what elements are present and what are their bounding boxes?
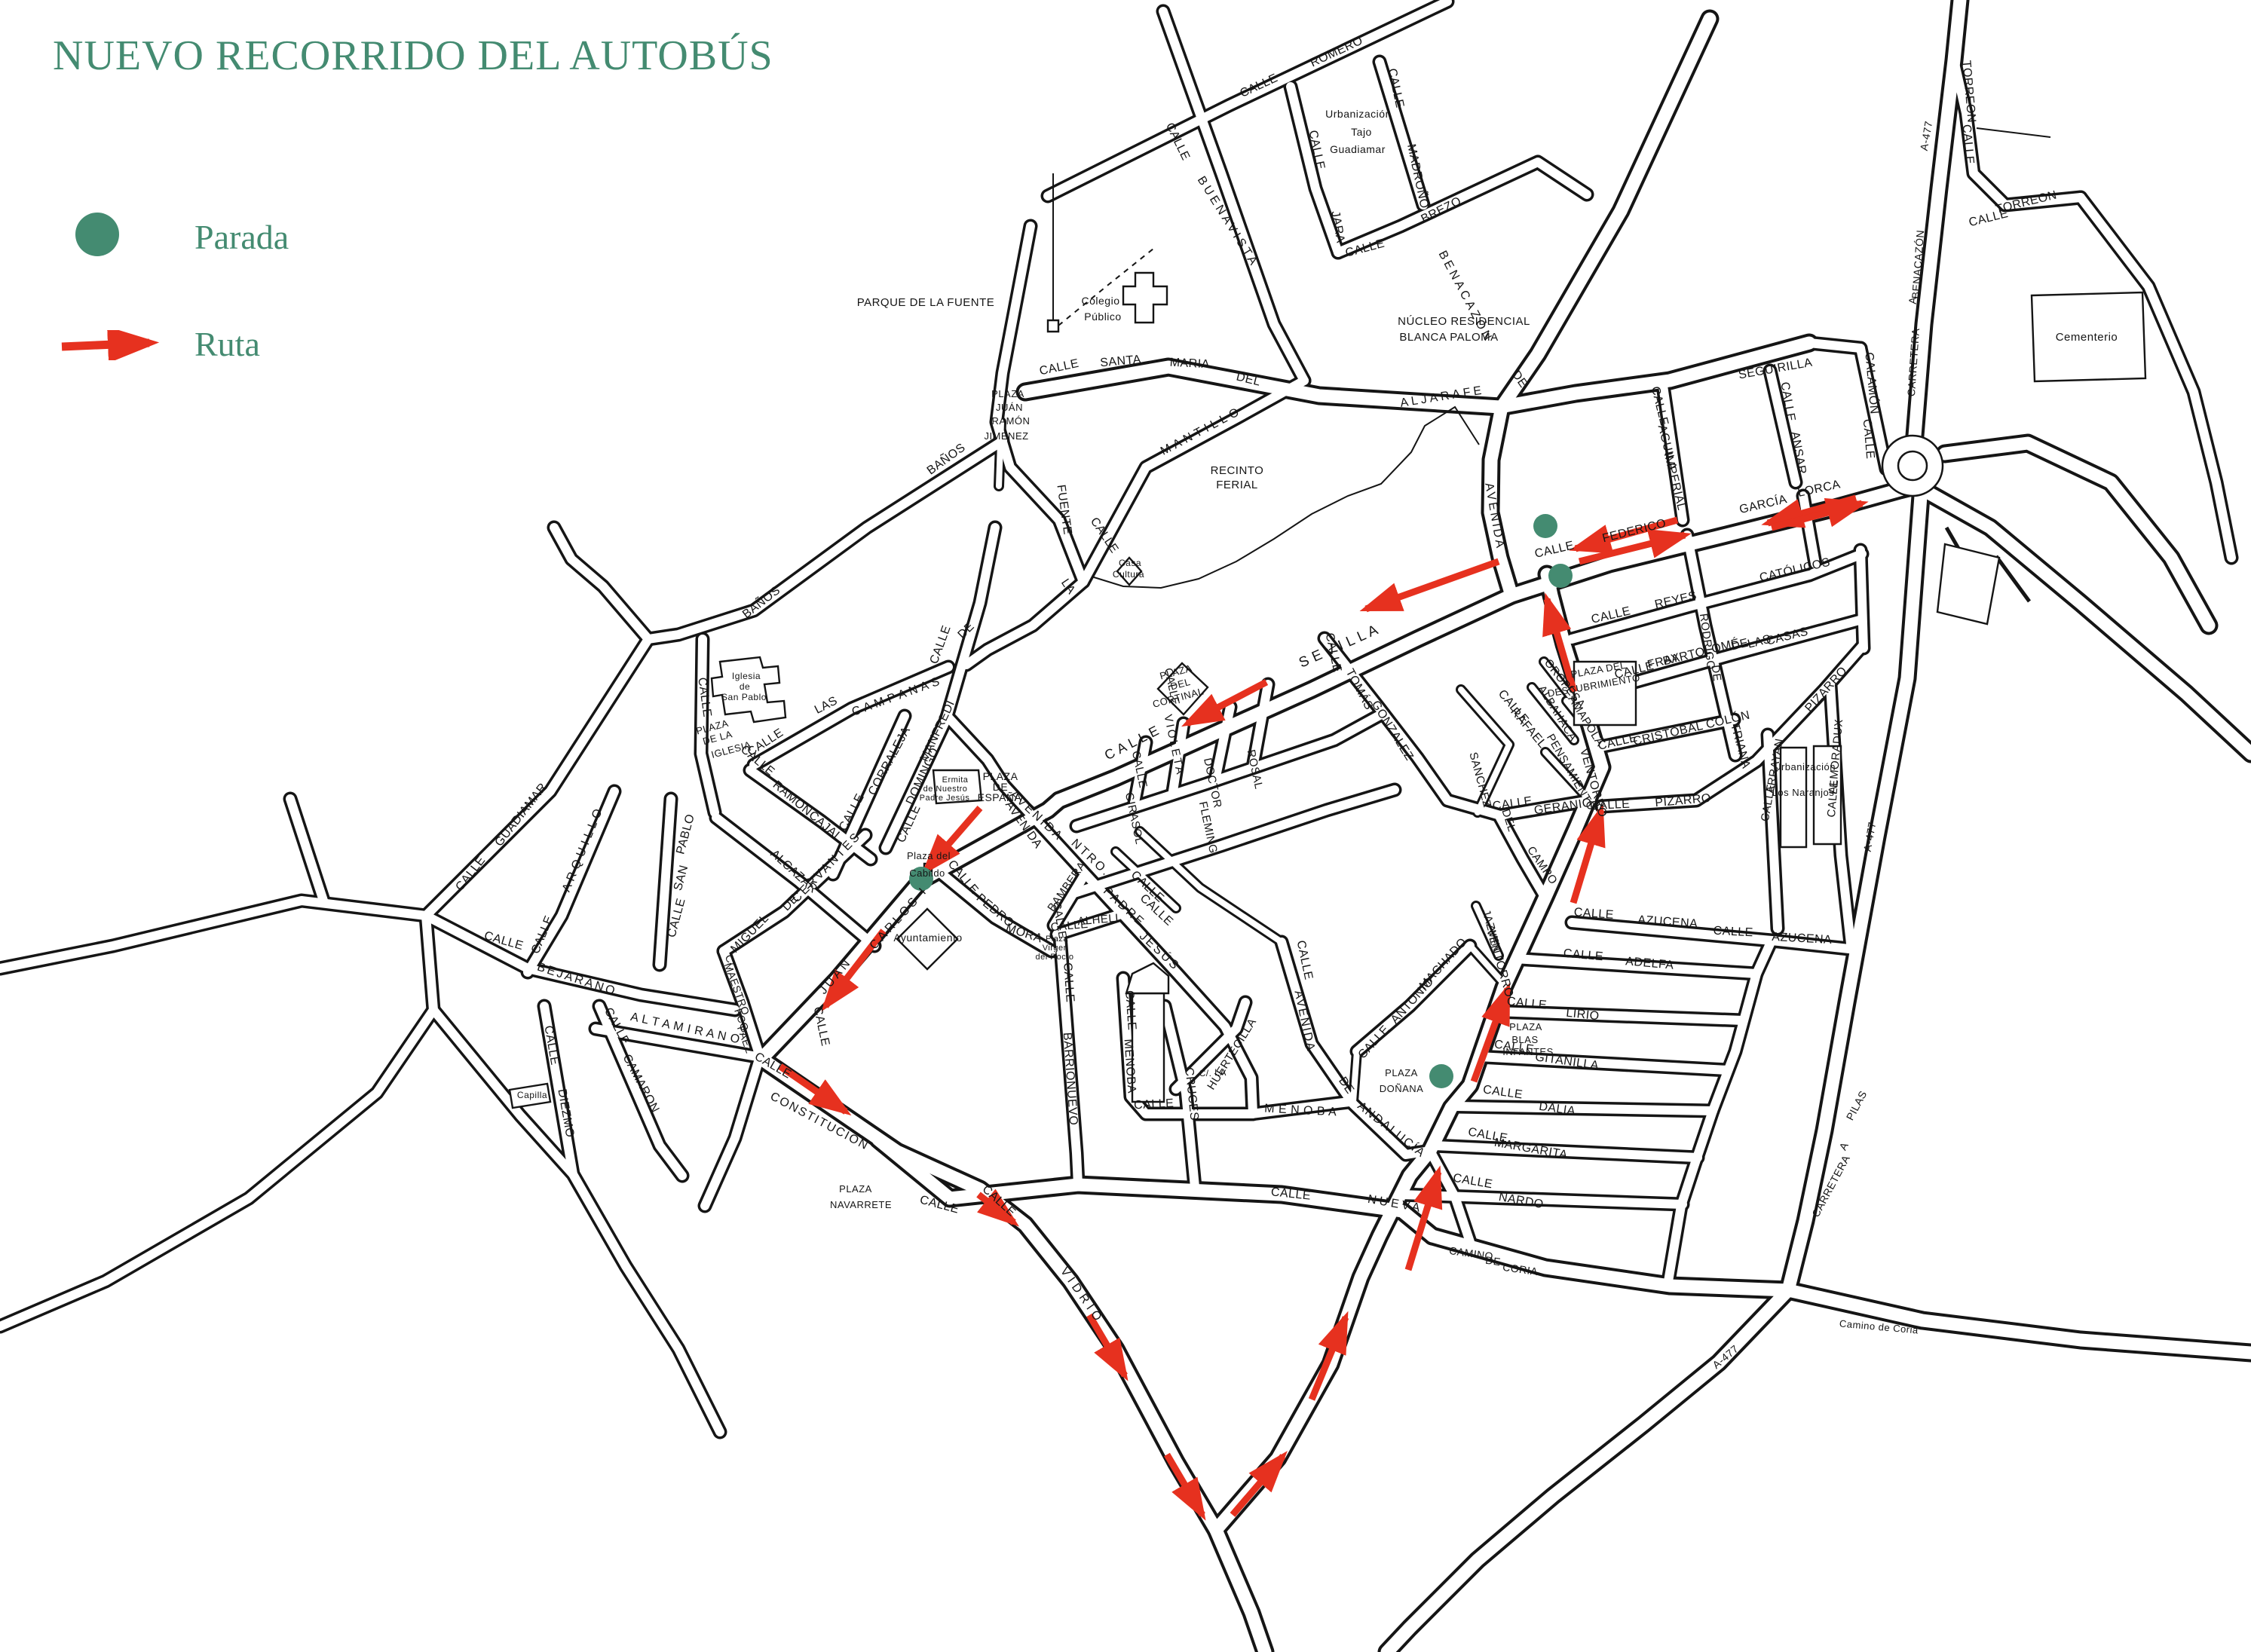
street-label: CALLE — [1713, 925, 1753, 940]
street-label: CERVANTES — [790, 830, 864, 906]
street-label: RECINTO — [1211, 464, 1264, 477]
street-label: del Rocío — [1036, 953, 1074, 962]
street-label: DOÑANA — [1380, 1083, 1424, 1094]
street-label: Urbanización — [1774, 761, 1836, 772]
street-label: TORREON — [1994, 188, 2058, 216]
street-label: SAN — [672, 864, 691, 892]
street-label: DE — [1709, 664, 1724, 682]
street-label: PIZARRO — [1655, 792, 1712, 809]
street-label: BARRIONUEVO — [1061, 1032, 1080, 1126]
street-label: Público — [1084, 311, 1121, 323]
street-label: MARGARITA — [1493, 1137, 1569, 1162]
road — [660, 799, 671, 965]
legend-ruta-label: Ruta — [194, 324, 260, 364]
street-label: INFANTES — [1502, 1046, 1554, 1057]
street-label: MARIA — [1169, 356, 1210, 372]
legend-parada-label: Parada — [194, 217, 289, 257]
street-label: CALLE — [1861, 418, 1877, 459]
street-label: RAMÓN — [992, 415, 1031, 427]
street-label: de Nuestro — [923, 785, 968, 794]
street-label: CALLE — [1482, 1083, 1524, 1101]
road — [433, 1010, 720, 1432]
road — [1809, 343, 1861, 348]
street-label: PARQUE DE LA FUENTE — [857, 296, 995, 309]
route-arrow — [1233, 1456, 1283, 1515]
bus-route-map-page: { "title": "NUEVO RECORRIDO DEL AUTOBÚS"… — [0, 0, 2251, 1652]
ruta-arrow-icon — [53, 330, 181, 360]
street-label: JESÚS — [1137, 928, 1184, 973]
street-label: MANTILLO — [1159, 404, 1245, 457]
street-label: A — [1836, 1140, 1851, 1152]
street-label: LORCA — [1796, 478, 1842, 500]
street-label: CALLE — [1960, 124, 1977, 164]
street-label: A-477 — [1918, 120, 1935, 151]
street-label: GONZALEZ — [1369, 699, 1416, 763]
road — [705, 1057, 760, 1206]
bus-stop-dot — [1548, 564, 1573, 588]
street-label: V I D R I O — [1058, 1265, 1104, 1324]
road — [0, 901, 426, 968]
street-label: ANDALUCÍA — [1355, 1098, 1429, 1160]
street-label: Cultura — [1113, 569, 1144, 580]
roundabout-island — [1898, 451, 1927, 480]
street-label: PILAS — [1844, 1088, 1870, 1122]
building-outline — [1048, 320, 1058, 332]
road — [1456, 1106, 1713, 1111]
road — [0, 916, 433, 1326]
street-label: Urbanización — [1325, 108, 1392, 120]
street-label: CALLE — [928, 624, 954, 666]
road — [1083, 381, 1304, 582]
road — [1861, 550, 1864, 648]
street-label: CALLE — [811, 1005, 832, 1048]
bus-stop-dot — [1429, 1064, 1453, 1088]
street-label: GUADIAMAR — [493, 781, 550, 849]
street-label: PLAZA — [991, 388, 1024, 399]
road — [554, 528, 648, 639]
building-outline — [1123, 273, 1167, 323]
street-label: DE — [1484, 1254, 1501, 1268]
street-label: Padre Jesús — [920, 794, 970, 803]
street-label: JUÁN — [996, 402, 1023, 413]
street-label: RAMON — [770, 779, 814, 818]
road — [648, 441, 1003, 639]
street-label: Guadiamar — [1330, 143, 1386, 155]
street-label: NÚCLEO RESIDENCIAL — [1398, 315, 1530, 328]
road — [1432, 1236, 2251, 1353]
street-label: Los Naranjos — [1772, 787, 1835, 798]
street-label: CALAMÓN — [1862, 352, 1882, 415]
road — [426, 916, 735, 1010]
road — [1083, 381, 1304, 582]
street-label: Capilla — [517, 1090, 547, 1100]
street-label: ALHELI — [1077, 912, 1119, 928]
street-label: PLAZA — [1509, 1021, 1542, 1032]
road — [426, 639, 648, 916]
street-label: PLAZA — [839, 1183, 872, 1195]
parada-stop-icon — [75, 213, 119, 256]
street-label: Ayuntamiento — [893, 932, 962, 944]
boundary-line — [1092, 407, 1479, 588]
street-label: Ermita — [942, 776, 969, 785]
street-label: AVENIDA — [1291, 990, 1317, 1054]
road — [290, 799, 324, 903]
town-map: CALLEROMEROCALLEJARACALLEMADROÑOBREZOCAL… — [0, 0, 2251, 1652]
boundary-line — [1977, 128, 2050, 137]
street-label: BLAS — [1511, 1034, 1538, 1045]
street-label: Plaza del — [907, 850, 951, 861]
street-label: Plaza — [1046, 935, 1068, 944]
street-label: FERIAL — [1216, 479, 1258, 491]
street-label: Tajo — [1351, 126, 1372, 138]
street-label: Virgen — [1043, 944, 1069, 953]
page-title: NUEVO RECORRIDO DEL AUTOBÚS — [53, 32, 773, 80]
road — [0, 916, 433, 1326]
street-label: CALLE — [1533, 539, 1576, 561]
roundabout — [1882, 436, 1943, 496]
building-outline — [1937, 544, 1999, 624]
bus-stop-dot — [1533, 514, 1557, 538]
street-label: Colegio — [1082, 295, 1120, 307]
street-label: Cabildo — [909, 867, 945, 879]
street-label: Casa — [1119, 558, 1141, 568]
road — [1163, 11, 1304, 381]
street-label: MIGUEL — [728, 912, 771, 956]
street-label: de — [740, 681, 750, 692]
street-label: Cementerio — [2056, 331, 2118, 344]
road — [1353, 1051, 1357, 1102]
street-label: PLAZA — [1385, 1067, 1418, 1078]
street-label: NAVARRETE — [830, 1199, 892, 1210]
street-label: JIMENEZ — [984, 430, 1028, 442]
street-label: Iglesia — [732, 671, 761, 681]
street-label: CALLE — [1134, 1097, 1175, 1112]
street-label: PABLO — [674, 812, 697, 855]
street-label: San Pablo — [721, 692, 767, 702]
